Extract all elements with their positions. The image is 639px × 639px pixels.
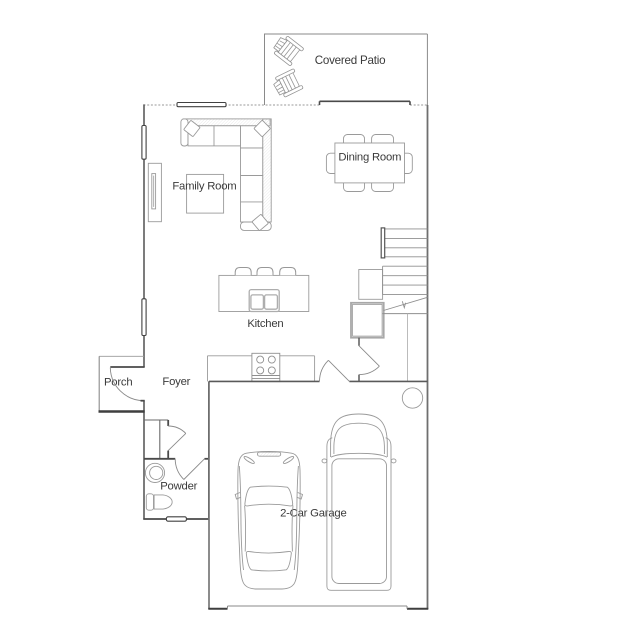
svg-text:Kitchen: Kitchen xyxy=(247,318,283,330)
svg-text:2-Car Garage: 2-Car Garage xyxy=(280,507,346,519)
svg-text:Covered Patio: Covered Patio xyxy=(315,54,386,67)
svg-text:Foyer: Foyer xyxy=(162,376,190,388)
svg-text:Family Room: Family Room xyxy=(172,181,236,193)
svg-text:Dining Room: Dining Room xyxy=(338,152,401,164)
svg-text:Porch: Porch xyxy=(104,376,132,388)
svg-text:Powder: Powder xyxy=(160,481,197,493)
